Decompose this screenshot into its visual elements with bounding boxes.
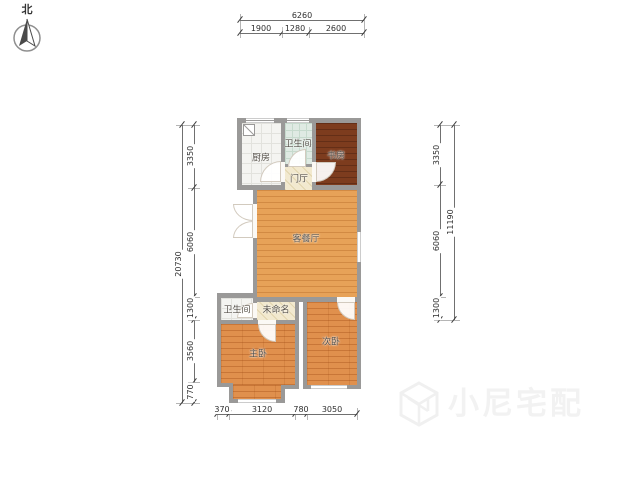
kitchen-label: 厨房 [252, 151, 270, 164]
wall [357, 293, 361, 389]
foyer-label: 门厅 [290, 172, 308, 185]
watermark: 小尼宅配 [398, 381, 584, 427]
wall [295, 302, 299, 389]
wall [237, 185, 285, 190]
floorplan-page: 北 [0, 0, 640, 480]
wall [217, 293, 221, 387]
dim-right-overall: 11190 [447, 207, 455, 236]
flue-icon [243, 124, 255, 136]
dim-bottom-segment: 370 [212, 406, 231, 414]
second-bedroom-label: 次卧 [322, 335, 340, 348]
dim-right-segment: 6060 [433, 229, 441, 253]
dim-line [240, 20, 364, 21]
wall [281, 385, 299, 389]
window [357, 232, 361, 262]
compass-icon [10, 15, 44, 55]
bath-upper-label: 卫生间 [284, 137, 311, 150]
dim-left-segment: 6060 [187, 230, 195, 254]
dim-line [217, 414, 357, 415]
french-door-arc [233, 204, 253, 221]
wall [357, 118, 361, 190]
wall [312, 118, 316, 162]
living-dining-label: 客餐厅 [292, 232, 319, 245]
wall [237, 118, 242, 190]
french-door-arc [233, 221, 253, 238]
door-opening [281, 162, 285, 182]
dim-left-overall: 20730 [175, 249, 183, 278]
dim-bottom-segment: 3120 [250, 406, 274, 414]
dim-right-segment: 1300 [433, 296, 441, 320]
wall [312, 185, 361, 190]
dim-left-segment: 1300 [187, 296, 195, 320]
bath-lower-label: 卫生间 [223, 303, 250, 316]
north-label: 北 [10, 4, 44, 15]
window [287, 118, 309, 123]
dim-bottom-segment: 780 [291, 406, 310, 414]
compass: 北 [10, 4, 44, 59]
watermark-brand: 小尼宅配 [448, 389, 584, 420]
dim-left-segment: 770 [187, 382, 195, 401]
window [246, 118, 274, 123]
dim-top-segment: 1900 [249, 25, 273, 33]
dim-top-segment: 1280 [283, 25, 307, 33]
cube-n-logo-icon [398, 381, 440, 427]
study-label: 书房 [327, 149, 345, 162]
window [311, 385, 347, 389]
dim-left-segment: 3350 [187, 144, 195, 168]
dim-line [240, 33, 364, 34]
master-bedroom-label: 主卧 [249, 347, 267, 360]
window [238, 399, 276, 403]
dim-top-segment: 2600 [324, 25, 348, 33]
wall [303, 302, 307, 389]
master-bedroom-floor-bay [233, 385, 281, 399]
dim-top-overall: 6260 [290, 12, 314, 20]
door-opening [253, 204, 257, 238]
dim-right-segment: 3350 [433, 143, 441, 167]
door-opening [253, 303, 257, 318]
wall [217, 293, 257, 298]
dim-left-segment: 3560 [187, 339, 195, 363]
unnamed-label: 未命名 [262, 303, 289, 316]
dim-bottom-segment: 3050 [320, 406, 344, 414]
